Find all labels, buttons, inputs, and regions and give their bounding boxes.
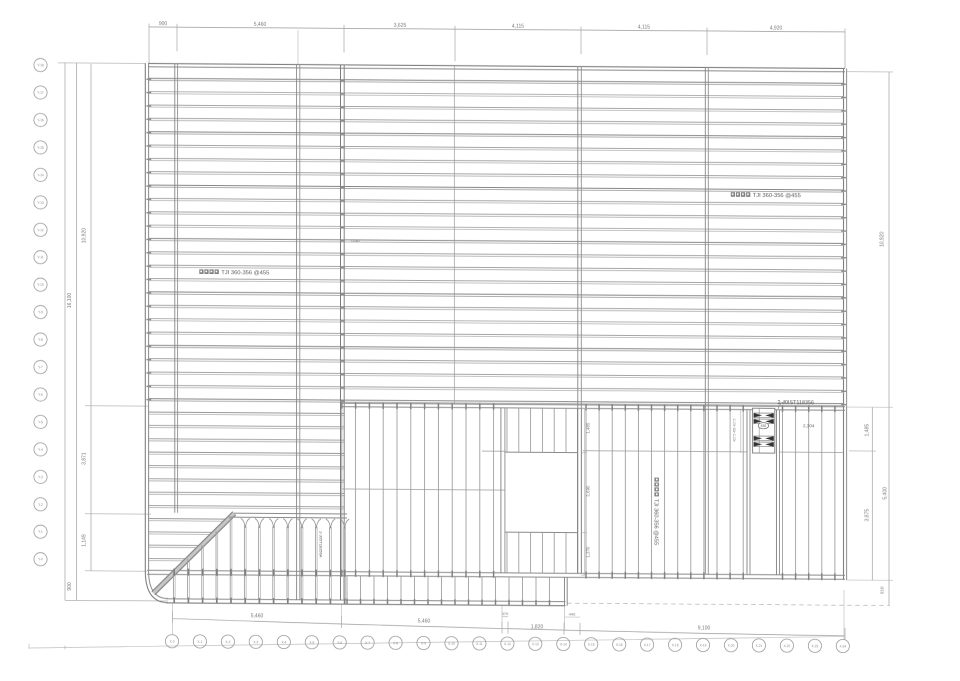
svg-text:Y-10: Y-10: [37, 283, 44, 287]
svg-text:Y-6: Y-6: [38, 393, 43, 397]
svg-text:5,460: 5,460: [251, 613, 264, 619]
svg-text:X-4: X-4: [281, 640, 286, 644]
svg-text:Y-1: Y-1: [38, 530, 43, 534]
svg-text:TJI 360-356 @455: TJI 360-356 @455: [753, 193, 801, 199]
svg-text:X-7: X-7: [365, 641, 370, 645]
svg-text:16,100: 16,100: [67, 293, 73, 309]
svg-text:440: 440: [569, 612, 576, 617]
svg-text:X-10: X-10: [448, 642, 455, 646]
svg-text:1,149: 1,149: [82, 534, 88, 547]
svg-text:1,485: 1,485: [586, 422, 591, 434]
svg-text:Y-8: Y-8: [38, 338, 43, 342]
svg-text:5,460: 5,460: [418, 618, 431, 624]
svg-text:X-17: X-17: [644, 643, 651, 647]
svg-text:TJI 360-356 @455: TJI 360-356 @455: [221, 270, 269, 276]
svg-text:910: 910: [880, 586, 885, 594]
svg-text:X-18: X-18: [672, 643, 679, 647]
svg-text:TJI 360-356 @455: TJI 360-356 @455: [653, 499, 659, 545]
svg-text:Y-2: Y-2: [38, 503, 43, 507]
svg-text:900: 900: [159, 21, 168, 27]
svg-text:X-12: X-12: [504, 642, 511, 646]
svg-text:1,820: 1,820: [531, 624, 544, 630]
svg-text:Y-16: Y-16: [37, 118, 44, 122]
svg-text:Y-7: Y-7: [38, 365, 43, 369]
svg-text:1,485: 1,485: [865, 424, 871, 437]
svg-text:X-20: X-20: [728, 644, 735, 648]
svg-text:Y-14: Y-14: [37, 173, 44, 177]
svg-text:9,100: 9,100: [698, 625, 711, 631]
svg-text:2,304: 2,304: [803, 423, 815, 428]
svg-text:Y-9: Y-9: [38, 310, 43, 314]
svg-text:5,460: 5,460: [254, 22, 267, 28]
svg-text:10,920: 10,920: [82, 228, 88, 244]
svg-text:X-16: X-16: [616, 643, 623, 647]
svg-text:Y-17: Y-17: [37, 91, 44, 95]
svg-text:Y-15: Y-15: [37, 146, 44, 150]
svg-text:3,871: 3,871: [82, 452, 88, 465]
svg-text:1,370: 1,370: [586, 546, 591, 558]
svg-text:417.5 450 417.5: 417.5 450 417.5: [733, 418, 737, 441]
svg-text:10,920: 10,920: [880, 231, 886, 247]
svg-text:X-8: X-8: [393, 641, 398, 645]
svg-text:2-J0IST118356: 2-J0IST118356: [778, 400, 814, 406]
svg-text:X-22: X-22: [784, 644, 791, 648]
svg-text:X-21: X-21: [756, 644, 763, 648]
svg-text:4,920: 4,920: [770, 26, 783, 32]
svg-text:X-15: X-15: [588, 643, 595, 647]
svg-text:4,115: 4,115: [512, 24, 524, 30]
svg-text:X-13: X-13: [532, 642, 539, 646]
svg-text:2,690: 2,690: [586, 485, 591, 497]
svg-text:X-23: X-23: [812, 644, 819, 648]
svg-text:Y-3: Y-3: [38, 475, 43, 479]
svg-text:430: 430: [761, 424, 767, 428]
svg-text:Y-18: Y-18: [37, 63, 44, 67]
svg-text:X-5: X-5: [309, 641, 314, 645]
svg-text:X-14: X-14: [560, 642, 567, 646]
svg-text:X-1: X-1: [197, 640, 202, 644]
svg-text:Y-4: Y-4: [38, 448, 43, 452]
svg-text:X-6: X-6: [337, 641, 342, 645]
svg-text:.0-46: .0-46: [350, 238, 360, 243]
svg-text:Y-11: Y-11: [37, 255, 43, 259]
svg-text:X-0: X-0: [170, 640, 175, 644]
svg-text:X-24: X-24: [839, 644, 846, 648]
svg-text:3,625: 3,625: [394, 23, 407, 29]
svg-text:Y-12: Y-12: [37, 228, 44, 232]
svg-text:2-J05T18356A: 2-J05T18356A: [319, 531, 324, 558]
svg-text:X-9: X-9: [421, 641, 426, 645]
svg-text:Y-5: Y-5: [38, 420, 43, 424]
svg-text:370: 370: [502, 611, 509, 616]
svg-text:X-3: X-3: [253, 640, 258, 644]
svg-text:900: 900: [67, 582, 73, 591]
svg-text:X-2: X-2: [225, 640, 230, 644]
svg-text:X-11: X-11: [476, 642, 483, 646]
svg-text:Y-13: Y-13: [37, 201, 44, 205]
svg-text:X-19: X-19: [700, 643, 707, 647]
svg-text:5,400: 5,400: [883, 487, 889, 500]
svg-text:Y-0: Y-0: [38, 557, 43, 561]
svg-text:4,115: 4,115: [638, 25, 650, 31]
svg-text:3,875: 3,875: [865, 509, 871, 522]
